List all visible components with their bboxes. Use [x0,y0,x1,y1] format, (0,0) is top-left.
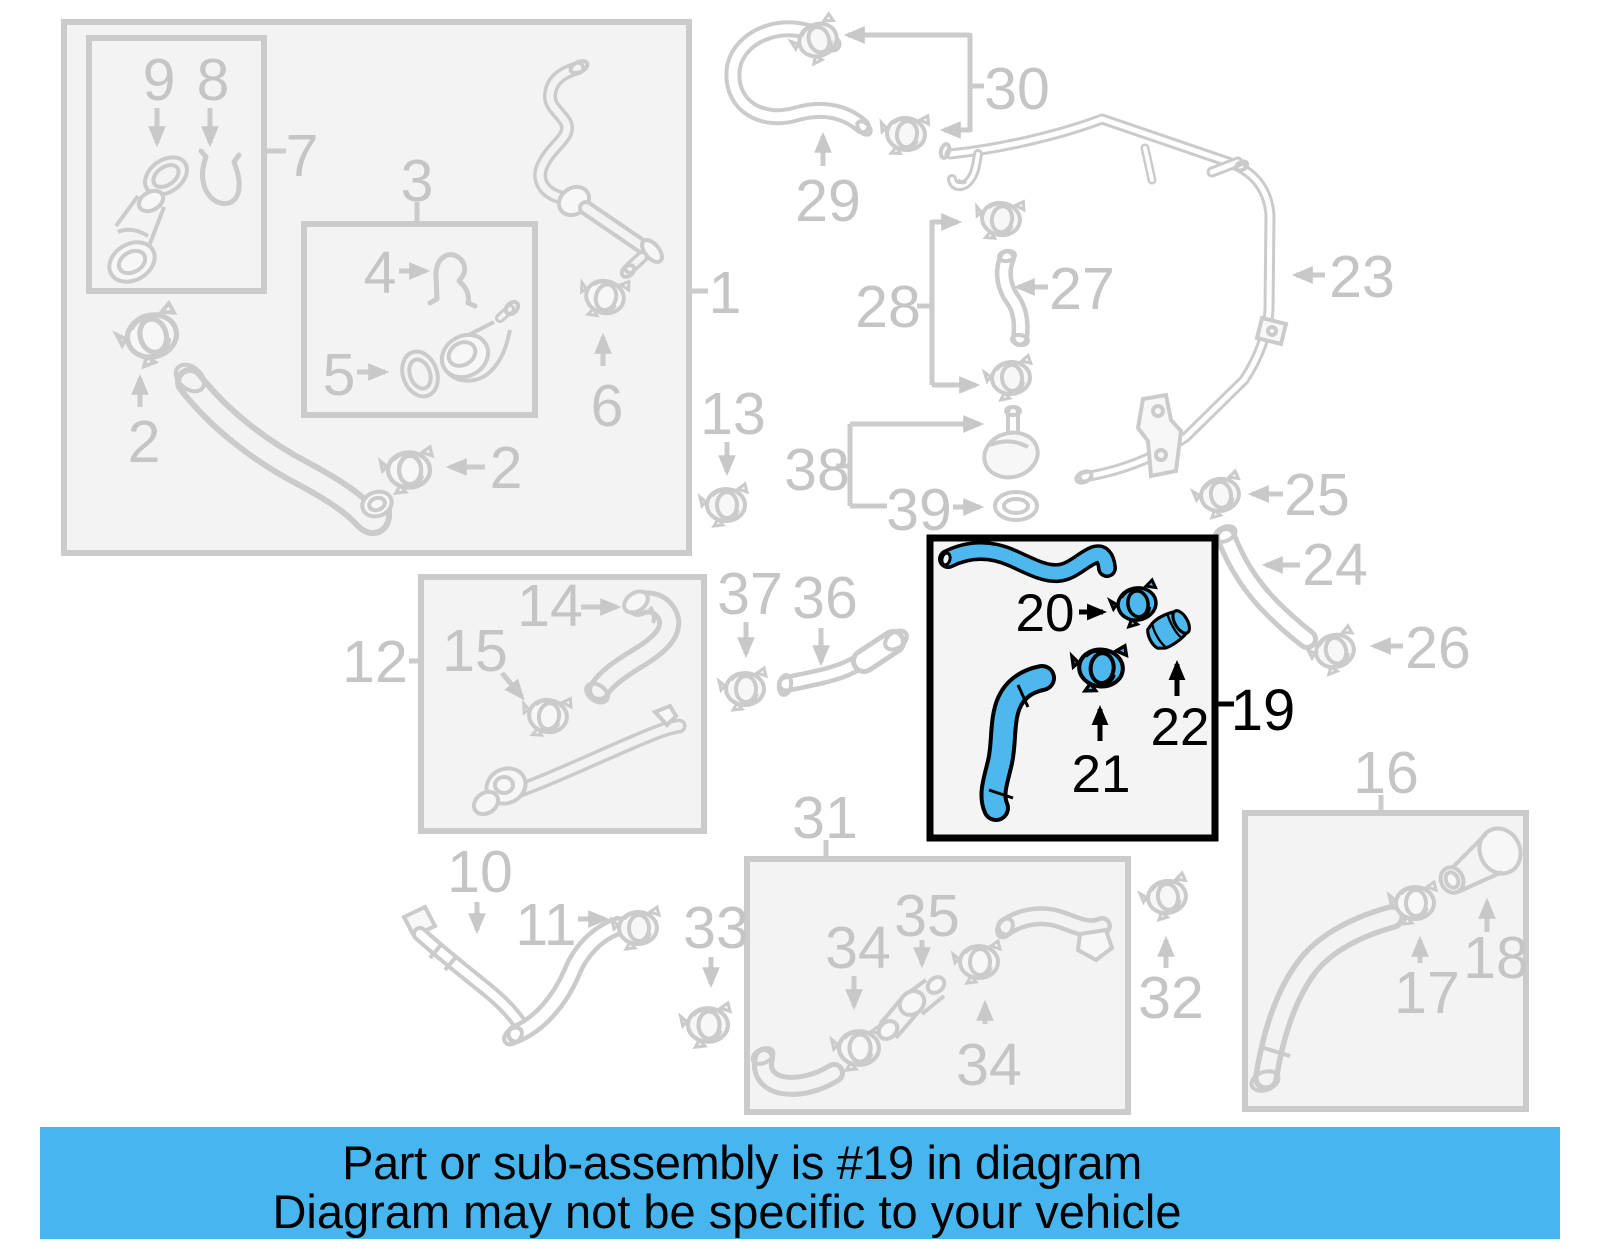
svg-text:4: 4 [364,240,397,306]
svg-text:15: 15 [442,618,508,684]
svg-text:27: 27 [1049,256,1115,322]
svg-text:31: 31 [792,785,858,851]
svg-text:Part or sub-assembly is #19 in: Part or sub-assembly is #19 in diagram [342,1136,1142,1189]
svg-text:33: 33 [683,895,749,961]
svg-text:12: 12 [342,629,408,695]
svg-text:38: 38 [784,437,850,503]
svg-text:6: 6 [591,373,624,439]
svg-text:Diagram may not be specific to: Diagram may not be specific to your vehi… [272,1185,1181,1238]
svg-text:30: 30 [984,56,1050,122]
svg-text:11: 11 [515,892,576,958]
svg-text:2: 2 [128,409,161,475]
svg-text:23: 23 [1329,244,1395,310]
svg-text:24: 24 [1302,532,1368,598]
svg-text:5: 5 [323,342,356,408]
svg-text:7: 7 [286,123,319,189]
svg-text:13: 13 [700,381,766,447]
svg-text:35: 35 [894,883,960,949]
svg-text:28: 28 [855,274,921,340]
svg-text:26: 26 [1405,615,1471,681]
svg-text:32: 32 [1138,965,1204,1031]
svg-text:2: 2 [490,435,523,501]
svg-text:18: 18 [1463,925,1529,991]
svg-text:1: 1 [709,260,742,326]
svg-text:34: 34 [956,1032,1022,1098]
svg-text:37: 37 [717,561,783,627]
svg-text:20: 20 [1016,584,1075,643]
svg-text:21: 21 [1072,745,1131,804]
svg-text:22: 22 [1151,698,1210,757]
svg-text:3: 3 [401,148,434,214]
svg-text:17: 17 [1394,960,1460,1026]
svg-text:16: 16 [1353,740,1419,806]
svg-text:36: 36 [792,565,858,631]
svg-text:25: 25 [1284,462,1350,528]
svg-text:9: 9 [143,47,176,113]
svg-text:29: 29 [795,168,861,234]
svg-text:34: 34 [825,915,891,981]
svg-text:14: 14 [517,573,583,639]
svg-text:8: 8 [197,47,230,113]
svg-text:10: 10 [447,839,513,905]
svg-text:39: 39 [886,477,952,543]
svg-text:19: 19 [1231,678,1296,743]
